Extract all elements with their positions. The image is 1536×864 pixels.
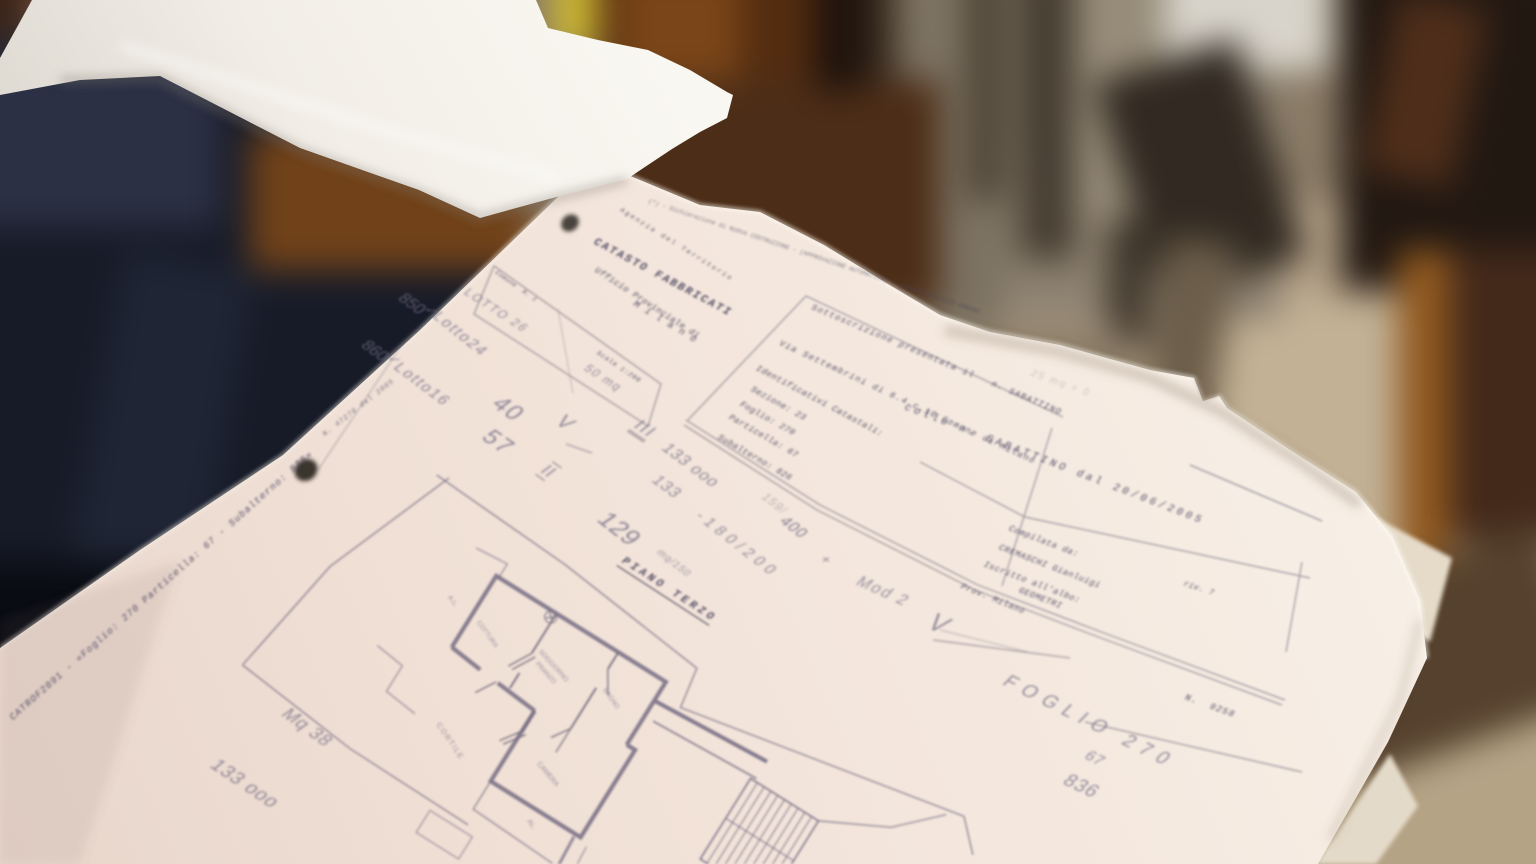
svg-text:AL.: AL. (525, 818, 537, 831)
svg-text:COTTURA: COTTURA (475, 620, 500, 650)
svg-text:CAMERA: CAMERA (535, 761, 560, 789)
svg-text:A.L.: A.L. (446, 594, 459, 608)
svg-text:BAGNO: BAGNO (601, 687, 620, 710)
svg-text:CORTILE: CORTILE (435, 721, 466, 762)
